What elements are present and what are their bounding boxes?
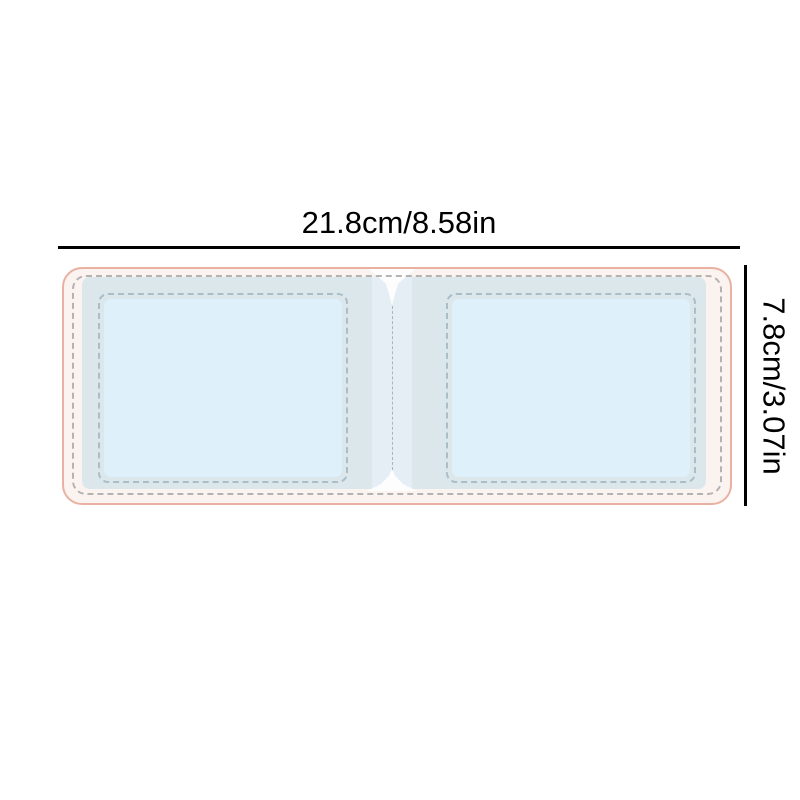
outer-edge-stitch-line (72, 275, 722, 495)
height-dimension-label: 7.8cm/3.07in (759, 297, 790, 475)
open-card-holder (62, 267, 732, 505)
width-dimension-line (58, 246, 740, 249)
height-dimension-line (744, 265, 747, 506)
product-dimension-diagram: 21.8cm/8.58in 7.8cm/3.07in (0, 0, 800, 800)
width-dimension-label: 21.8cm/8.58in (58, 204, 740, 241)
